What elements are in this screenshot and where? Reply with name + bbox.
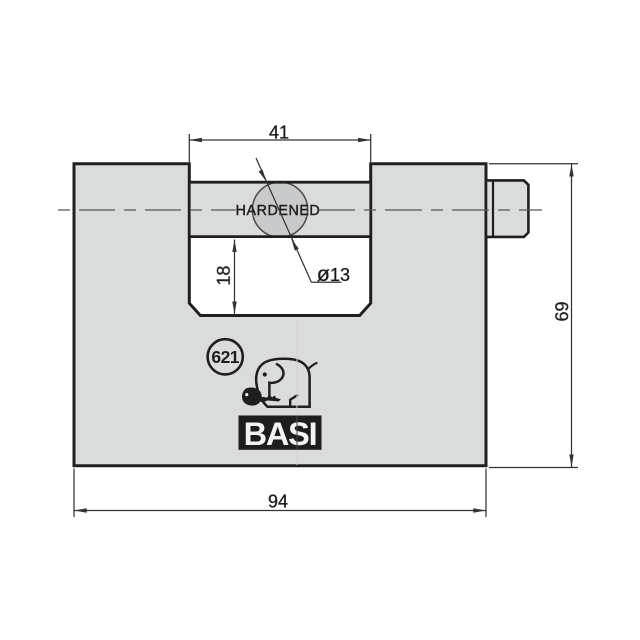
svg-text:94: 94 — [268, 492, 288, 512]
svg-text:69: 69 — [552, 301, 572, 321]
svg-text:18: 18 — [214, 266, 234, 286]
svg-text:HARDENED: HARDENED — [236, 203, 321, 219]
svg-text:41: 41 — [269, 122, 289, 142]
svg-text:ø13: ø13 — [317, 262, 350, 286]
svg-text:BASI: BASI — [244, 416, 317, 452]
svg-text:621: 621 — [211, 347, 239, 367]
